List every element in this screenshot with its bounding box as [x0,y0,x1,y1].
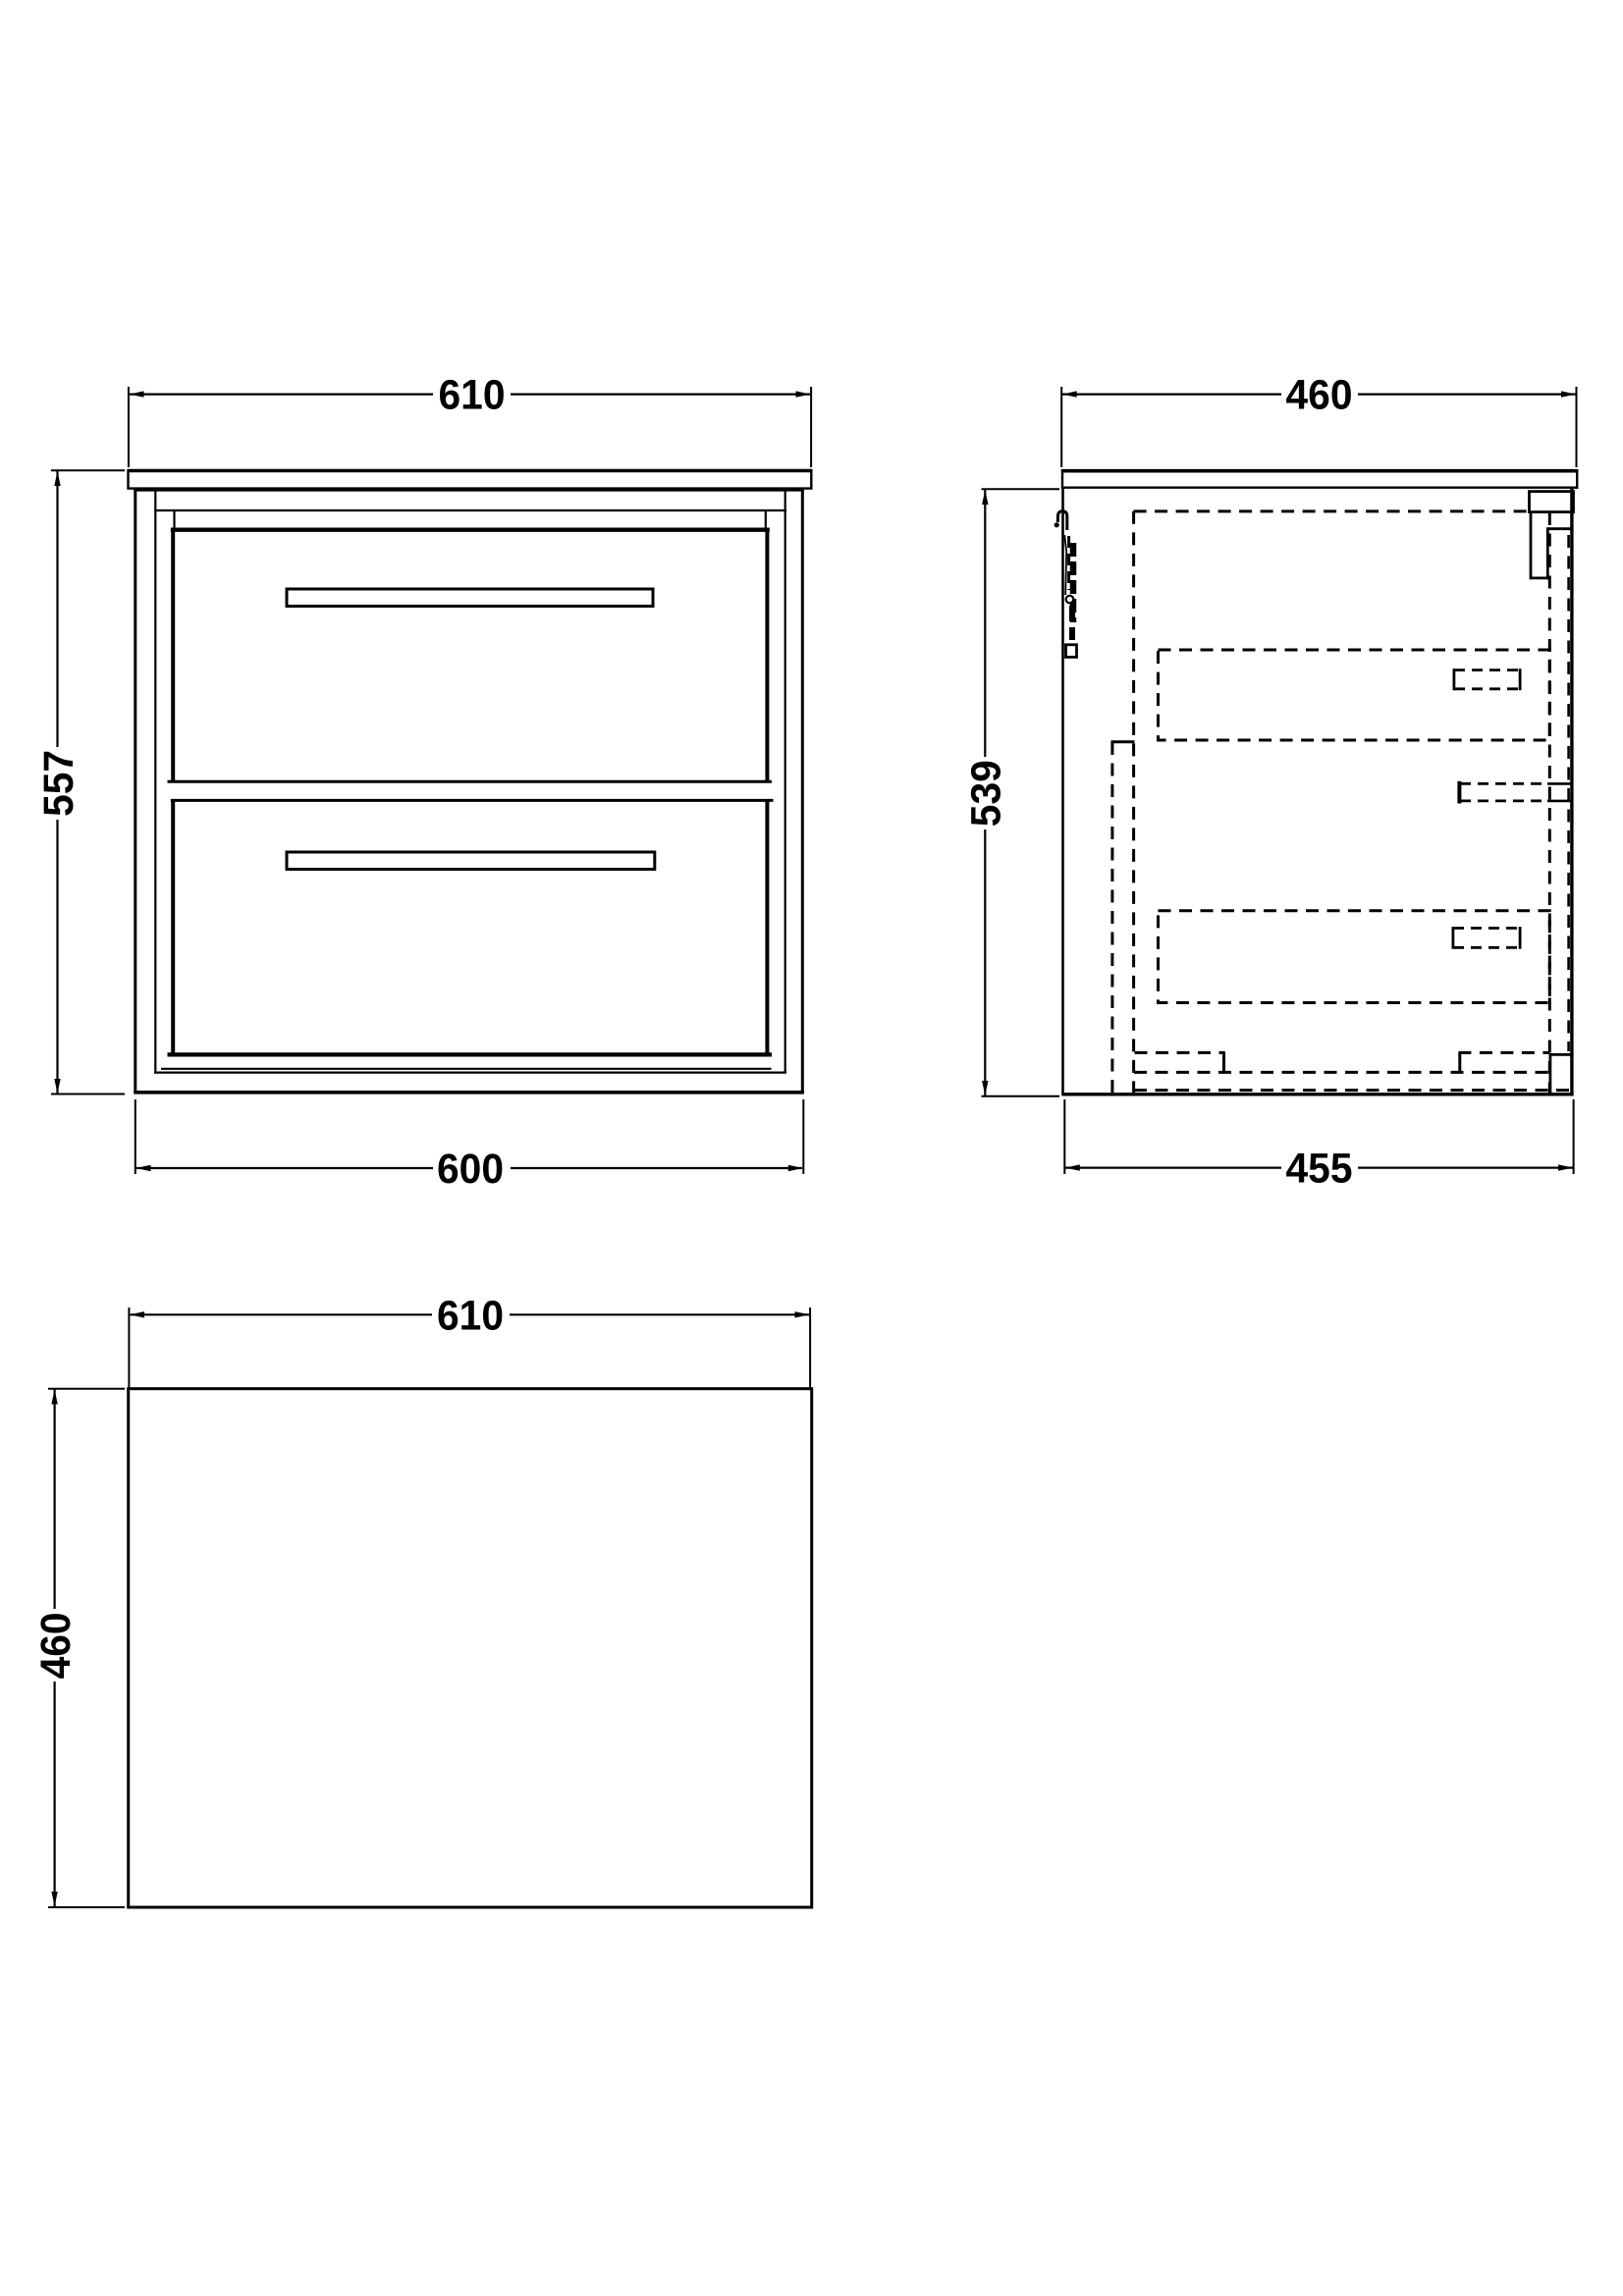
svg-text:600: 600 [437,1146,504,1193]
svg-text:610: 610 [437,1292,504,1339]
svg-text:610: 610 [439,372,506,419]
svg-text:460: 460 [1286,372,1353,419]
svg-text:455: 455 [1286,1146,1353,1193]
svg-text:539: 539 [963,760,1010,827]
svg-text:557: 557 [35,750,82,817]
svg-text:460: 460 [32,1612,80,1679]
